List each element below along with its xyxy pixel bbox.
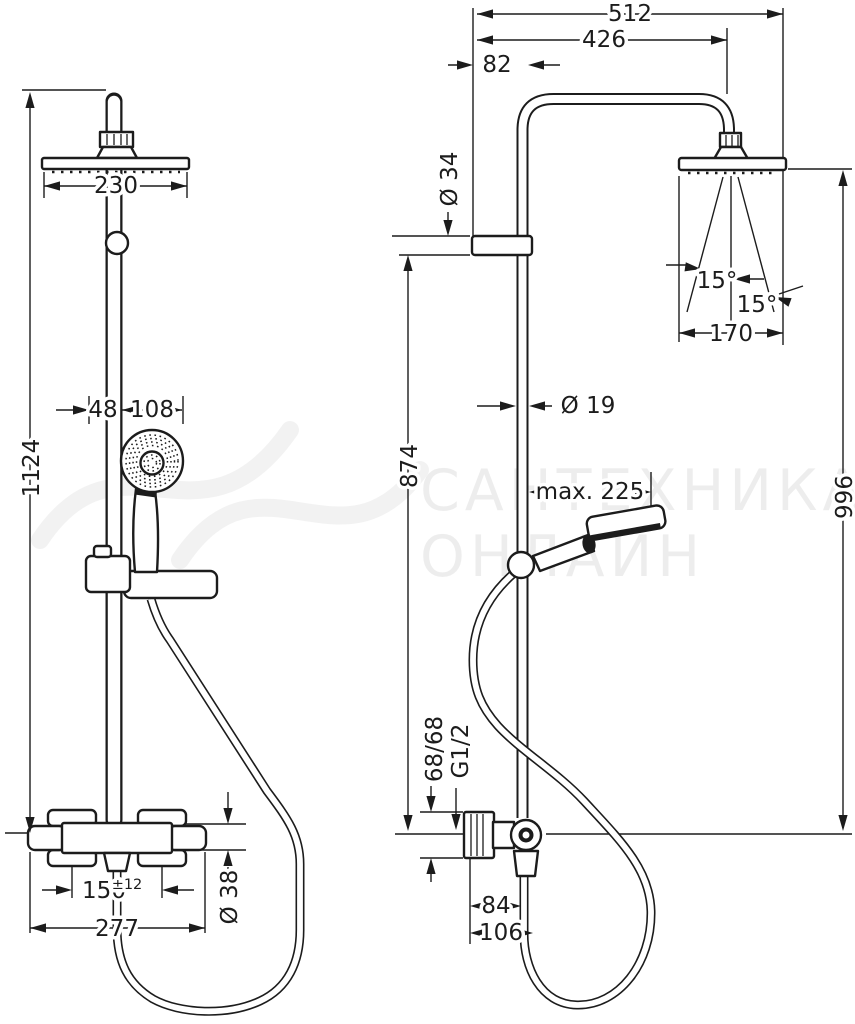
- dim-port-spacing-label: 68/68: [422, 716, 448, 782]
- dim-277-label: 277: [95, 916, 139, 942]
- holder-clamp: [86, 556, 130, 592]
- overhead-shower-side: [679, 158, 786, 170]
- dim-head-height-label: 996: [832, 475, 855, 519]
- elbow-hole: [521, 830, 532, 841]
- dim-column-height-label: 874: [397, 444, 423, 488]
- dim-pipe-diameter-label: Ø 19: [561, 393, 616, 419]
- slider-knob: [106, 232, 128, 254]
- wall-bracket-collar: [472, 236, 532, 255]
- dim-total-height-label: 1124: [19, 439, 45, 498]
- left-product: [28, 101, 300, 1011]
- overhead-shower-front: [42, 158, 189, 169]
- dim-108-label: 108: [130, 397, 174, 423]
- dim-48-label: 48: [88, 397, 117, 423]
- head-fitting: [100, 132, 133, 147]
- valve-handle-right: [168, 826, 206, 850]
- dim-150-tolerance-label: ±12: [112, 877, 143, 893]
- dim-thread-size-label: G1/2: [448, 724, 474, 779]
- dim-spray-angle-left-label: 15°: [697, 268, 738, 294]
- wall-union-fitting: [464, 812, 494, 858]
- dim-arm-reach-label: 426: [582, 27, 626, 53]
- head-cone: [97, 147, 137, 158]
- dim-hose-offset-outer-label: 106: [479, 920, 523, 946]
- holder-knob: [94, 546, 111, 557]
- shower-system-technical-drawing: САНТЕХНИКА- ОНЛАЙН: [0, 0, 855, 1024]
- holder-arm: [124, 571, 217, 598]
- dim-valve-diameter-label: Ø 38: [217, 870, 243, 925]
- dim-wall-offset-label: 82: [482, 52, 511, 78]
- left-dimension-lines: [5, 90, 246, 933]
- dim-hose-offset-label: 84: [481, 893, 510, 919]
- shower-hose-front: [117, 599, 300, 1011]
- elbow-foot: [514, 851, 538, 876]
- hand-shower-handle: [133, 489, 158, 572]
- dim-spray-angle-right-label: 15°: [737, 292, 778, 318]
- dim-max-reach-label: max. 225: [536, 479, 645, 505]
- left-view-front: 230 48 108 1124 150 ±12 277 Ø 38: [5, 90, 300, 1011]
- thermostat-body: [62, 823, 172, 853]
- valve-outlet: [104, 853, 130, 871]
- valve-handle-left: [28, 826, 66, 850]
- dim-head-width-label: 230: [94, 173, 138, 199]
- dim-head-depth-label: 170: [709, 321, 753, 347]
- holder-ball-joint: [508, 552, 534, 578]
- dim-total-depth-label: 512: [608, 1, 652, 27]
- dim-collar-diameter-label: Ø 34: [437, 152, 463, 207]
